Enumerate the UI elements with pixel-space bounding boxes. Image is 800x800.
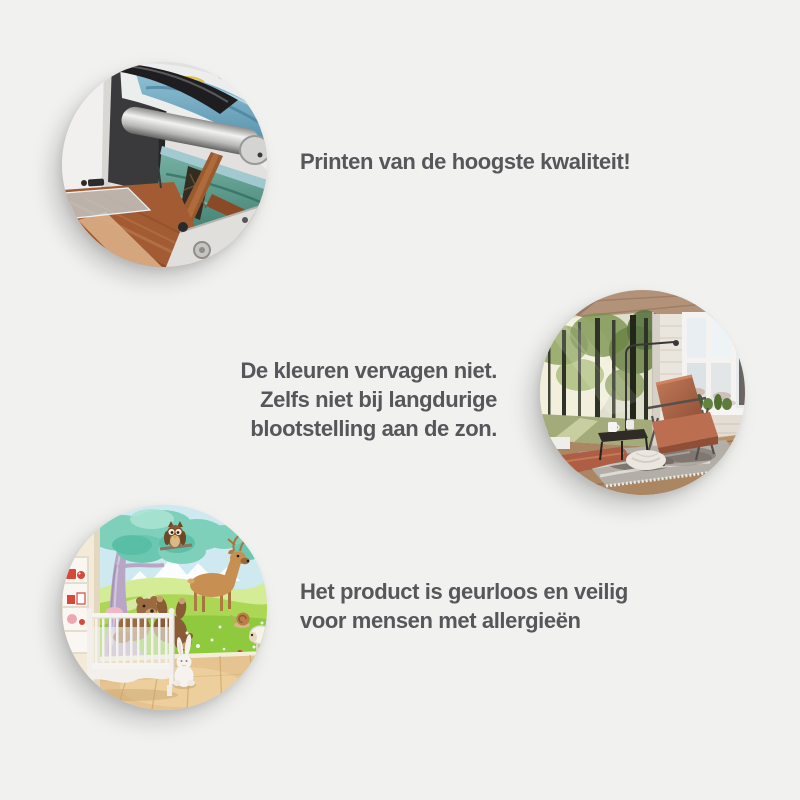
living-room-illustration	[540, 290, 745, 495]
caption-print-quality: Printen van de hoogste kwaliteit!	[300, 147, 630, 176]
mug	[608, 422, 617, 432]
forest-wall-mural	[540, 310, 663, 447]
mug	[626, 420, 634, 429]
caption-line: Printen van de hoogste kwaliteit!	[300, 147, 630, 176]
living-room-forest-mural-photo	[540, 290, 745, 495]
nursery-illustration	[62, 505, 267, 710]
caption-line: Het product is geurloos en veilig	[300, 577, 628, 606]
floor-cushion	[626, 450, 666, 470]
printing-machine-photo	[62, 62, 267, 267]
red-toy	[66, 569, 76, 579]
caption-line: Zelfs niet bij langdurige	[240, 385, 497, 414]
caption-no-fading: De kleuren vervagen niet. Zelfs niet bij…	[240, 356, 497, 443]
caption-line: voor mensen met allergieën	[300, 606, 628, 635]
pink-toy	[67, 614, 77, 624]
printing-machine-illustration	[62, 62, 267, 267]
lamp-shade	[673, 340, 679, 346]
caption-line: blootstelling aan de zon.	[240, 414, 497, 443]
caption-odorless-safe: Het product is geurloos en veilig voor m…	[300, 577, 628, 635]
product-benefits-panel: Printen van de hoogste kwaliteit!	[0, 0, 800, 800]
nursery-animal-mural-photo	[62, 505, 267, 710]
radiator	[540, 437, 570, 449]
caption-line: De kleuren vervagen niet.	[240, 356, 497, 385]
